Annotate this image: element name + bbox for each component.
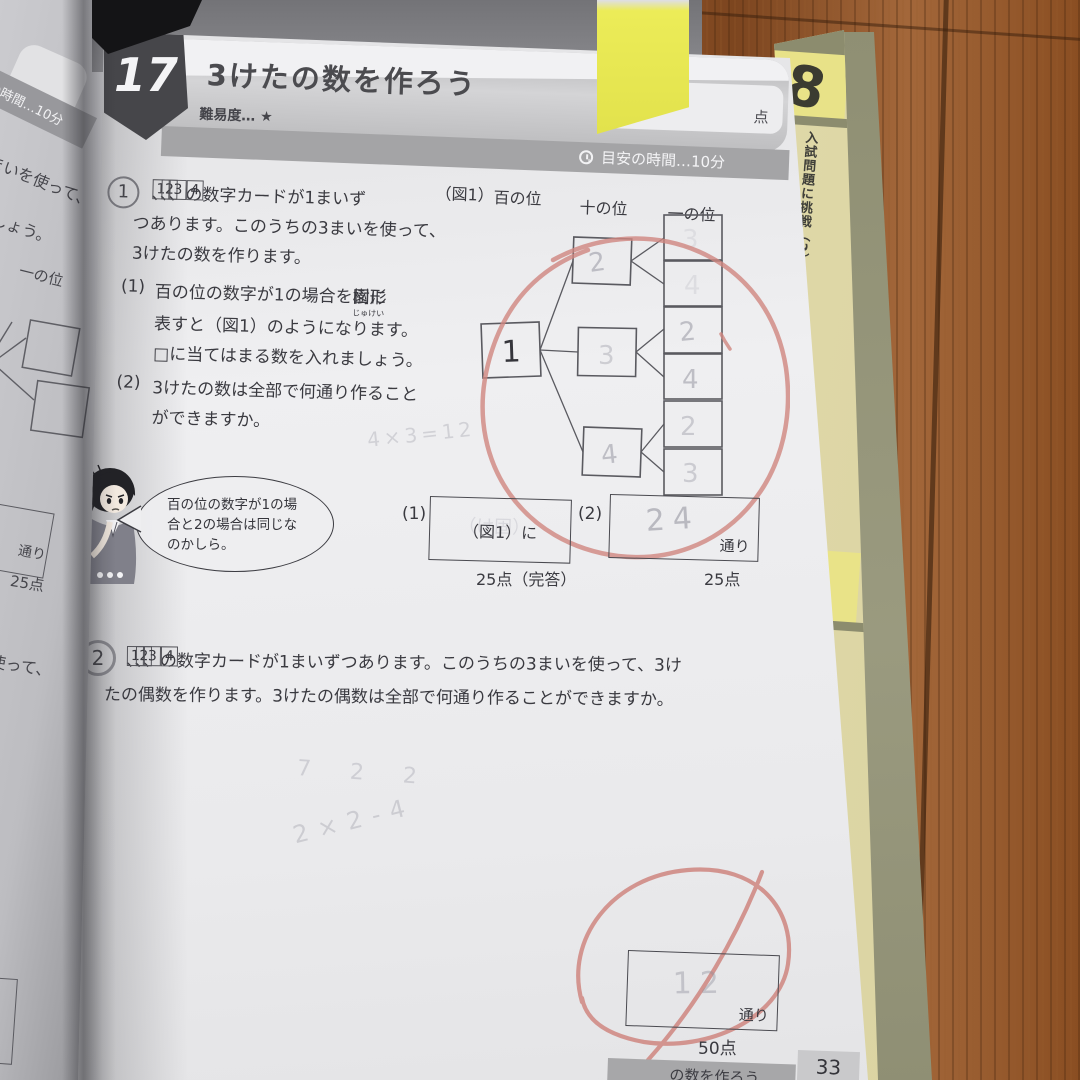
answer2-unit: 通り <box>719 535 750 557</box>
answer1-printed: （図1）に <box>430 517 571 545</box>
bubble-line-3: のかしら。 <box>167 533 235 553</box>
tens-answer-1: 2 <box>587 247 608 279</box>
tens-answer-2: 3 <box>598 341 615 371</box>
bubble-line-2: 合と2の場合は同じな <box>167 513 297 533</box>
problem-1-line-1: 1、2、3、4の数字カードが1まいず <box>151 179 366 210</box>
problem-2-text: の数字カードが1まいずつあります。このうちの3まいを使って、3け <box>160 651 682 676</box>
answer3-box: 12 通り <box>625 950 780 1031</box>
tens-answer-3: 4 <box>600 439 620 471</box>
q1-line-1: 百の位の数字が1の場合を樹形じゅけい図に <box>155 277 387 308</box>
q1-line-3: □に当てはまる数を入れましょう。 <box>153 339 423 371</box>
ruby-base: 樹形 <box>352 287 387 308</box>
handwritten-12: 12 <box>672 966 727 1002</box>
digit-card-4: 4 <box>161 646 178 666</box>
prev-text-2: しょう。 <box>0 206 56 248</box>
q1-label: (1) <box>121 276 146 297</box>
answer1-box: （け固） （図1）に <box>428 496 572 564</box>
page-number: 33 <box>797 1054 860 1080</box>
speech-bubble-tail <box>116 502 142 536</box>
q2-line-2: ができますか。 <box>151 403 270 431</box>
speech-bubble: 百の位の数字が1の場 合と2の場合は同じな のかしら。 <box>136 476 334 572</box>
book-gutter-shadow <box>62 0 116 1080</box>
problem-1-line-3: 3けたの数を作ります。 <box>132 239 312 269</box>
digit-card-3: 3 <box>144 646 161 666</box>
answer1-label: (1) <box>402 504 426 524</box>
difficulty-label: 難易度… ★ <box>199 104 273 127</box>
prev-answer-points: 25点 <box>9 570 46 596</box>
problem-1-text: の数字カードが1まいず <box>185 185 366 210</box>
bubble-line-1: 百の位の数字が1の場 <box>167 493 297 513</box>
photo-of-workbook-page: 28 入試問題に挑戦（2） 3 点 安の時間…10分 まいを使って、 しょう。 … <box>0 0 1080 1080</box>
root-digit: 1 <box>501 334 521 370</box>
problem-2-line-1: 1、2、3、4の数字カードが1まいずつあります。このうちの3まいを使って、3け <box>126 646 682 676</box>
prev-bottom-box <box>0 976 18 1065</box>
answer3-unit: 通り <box>738 1004 769 1026</box>
pencil-scribble-3: 2×2-4 <box>290 792 418 849</box>
answer2-points: 25点 <box>704 566 740 590</box>
footer-title: の数を作ろう <box>669 1064 760 1080</box>
problem-1-line-2: つあります。このうちの3まいを使って、 <box>132 209 446 242</box>
prev-answer-box <box>0 498 55 579</box>
ones-answer-2: 4 <box>684 271 701 301</box>
problem-2-line-2: たの偶数を作ります。3けたの偶数は全部で何通り作ることができますか。 <box>104 680 674 710</box>
clock-icon <box>579 150 594 165</box>
answer2-label: (2) <box>578 504 602 524</box>
handwritten-24: 24 <box>645 501 701 539</box>
digit-card-4: 4 <box>186 180 203 200</box>
prev-text-3: 一の位 <box>17 260 66 291</box>
q1-text-a: 百の位の数字が1の場合を <box>155 282 353 307</box>
page-number-box: 33 <box>797 1050 860 1080</box>
unit-title: 3けたの数を作ろう <box>206 52 477 103</box>
ones-answer-6: 3 <box>682 459 699 489</box>
ones-answer-4: 4 <box>682 365 699 395</box>
answer1-points: 25点（完答） <box>476 566 576 590</box>
digit-card-3: 3 <box>169 180 186 200</box>
prev-text-4: 使って、 <box>0 648 54 681</box>
q2-line-1: 3けたの数は全部で何通り作ること <box>152 373 418 405</box>
answer2-box: 24 通り <box>608 494 760 562</box>
answer3-points: 50点 <box>698 1034 737 1059</box>
score-unit-label: 点 <box>753 106 769 128</box>
unit-number: 17 <box>104 48 188 102</box>
q2-label: (2) <box>116 372 141 393</box>
ones-answer-5: 2 <box>680 412 697 442</box>
ruby-jukei: 樹形じゅけい <box>352 282 387 308</box>
ones-answer-3: 2 <box>678 317 697 348</box>
pencil-scribble-2: 7 2 2 <box>296 756 433 790</box>
